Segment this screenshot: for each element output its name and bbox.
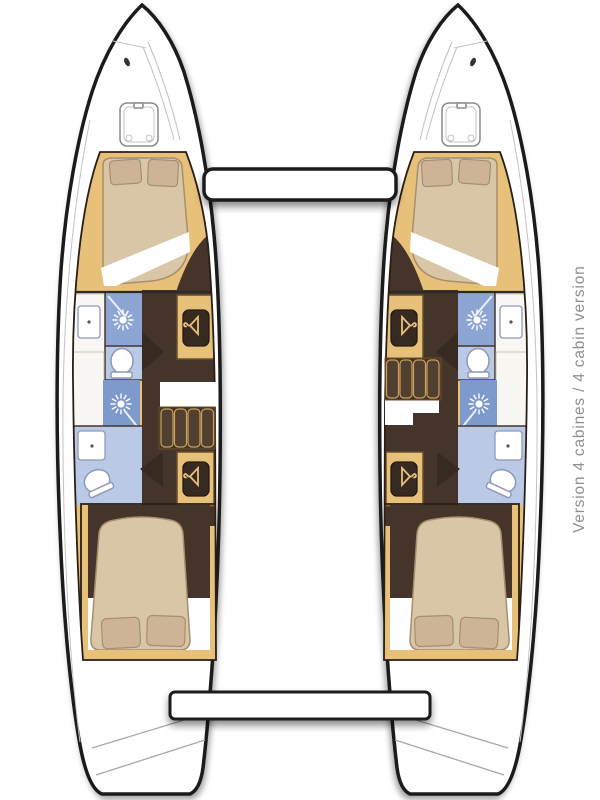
- stair-landing: [160, 382, 216, 407]
- catamaran-floor-plan: Version 4 cabines / 4 cabin version: [0, 0, 600, 800]
- forward-crossbeam: [204, 169, 396, 200]
- companionway-left: [159, 382, 216, 449]
- version-caption: Version 4 cabines / 4 cabin version: [571, 265, 588, 533]
- aft-step-platform: [170, 692, 430, 719]
- hull-right: [375, 5, 543, 794]
- stair-landing: [385, 398, 413, 425]
- hull-left: [57, 5, 225, 794]
- floor-plan-page: Version 4 cabines / 4 cabin version: [0, 0, 600, 800]
